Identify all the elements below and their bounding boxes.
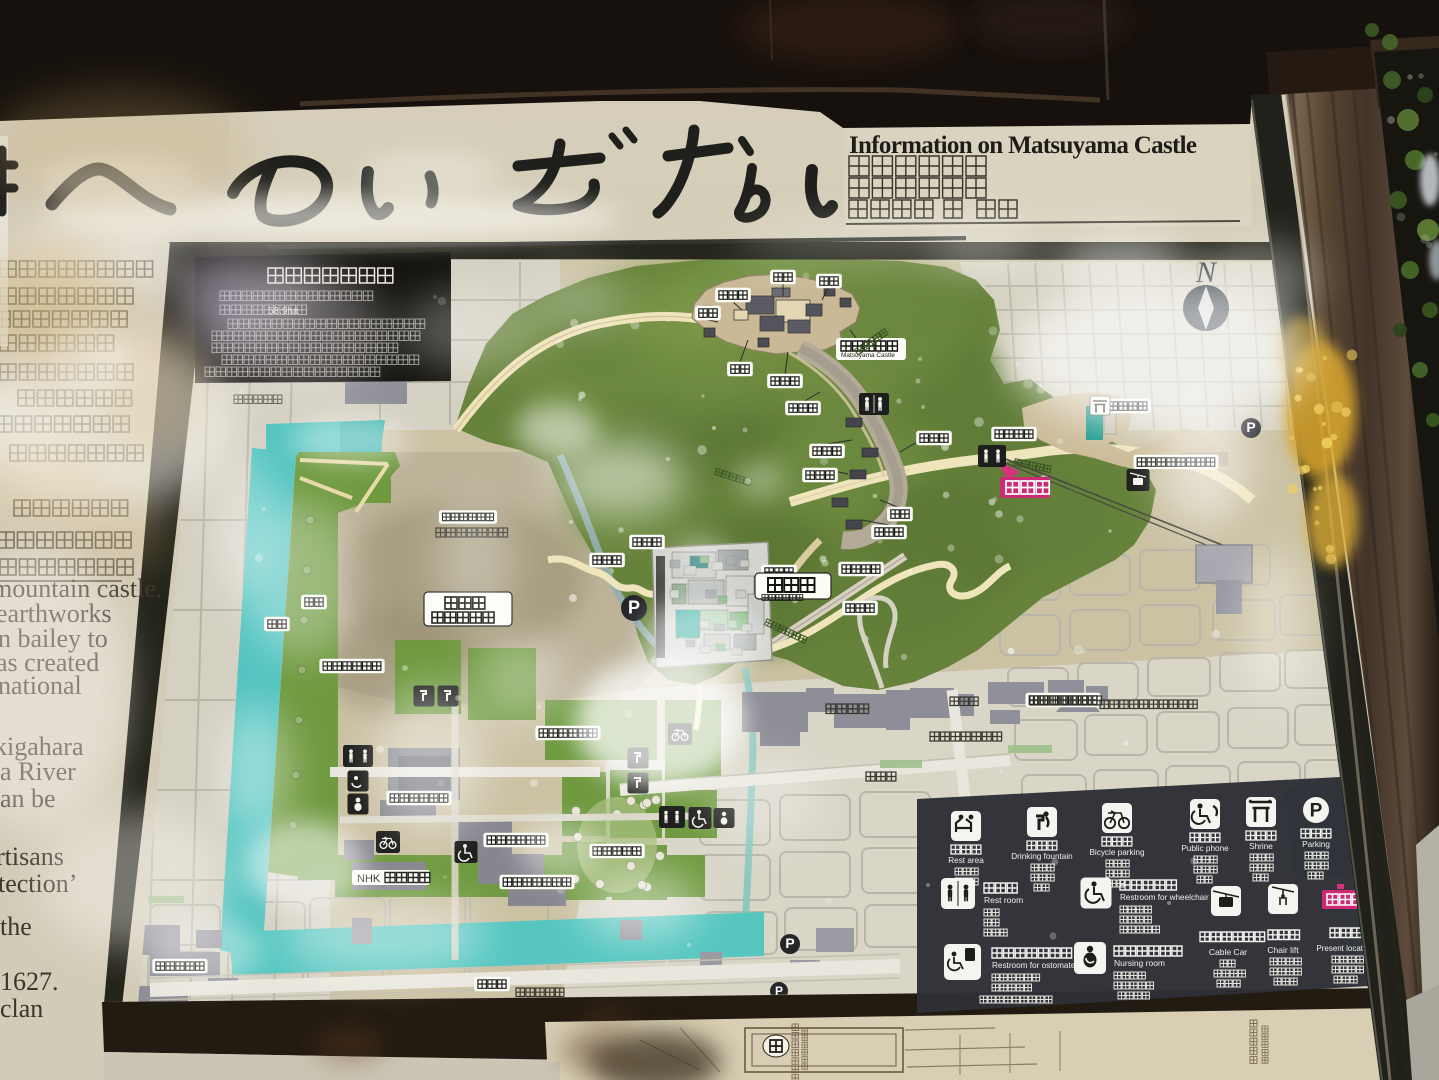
svg-text:Bicycle parking: Bicycle parking bbox=[1089, 848, 1145, 857]
svg-text:Shrine: Shrine bbox=[1249, 842, 1273, 851]
svg-text:Cable Car: Cable Car bbox=[1209, 947, 1247, 957]
svg-text:P: P bbox=[1246, 419, 1255, 435]
svg-text:Drinking fountain: Drinking fountain bbox=[1011, 852, 1073, 861]
svg-text:P: P bbox=[1310, 801, 1323, 822]
svg-text:Nursing room: Nursing room bbox=[1114, 958, 1165, 968]
svg-text:Information on Matsuyama Castl: Information on Matsuyama Castle bbox=[849, 132, 1197, 159]
svg-text:Rest area: Rest area bbox=[948, 856, 984, 865]
svg-text:Rest room: Rest room bbox=[984, 895, 1023, 905]
svg-text:Public phone: Public phone bbox=[1181, 844, 1229, 853]
svg-text:P: P bbox=[628, 597, 640, 617]
svg-text:Restroom for wheelchair: Restroom for wheelchair bbox=[1120, 893, 1209, 902]
svg-text:Restroom for ostomates: Restroom for ostomates bbox=[992, 961, 1079, 970]
svg-text:1627.: 1627. bbox=[0, 967, 59, 996]
svg-text:Chair lift: Chair lift bbox=[1267, 945, 1299, 955]
svg-text:P: P bbox=[785, 935, 794, 951]
svg-text:Parking: Parking bbox=[1302, 840, 1330, 849]
svg-text:the: the bbox=[0, 912, 32, 941]
svg-text:clan: clan bbox=[0, 994, 43, 1023]
svg-text:Matsuyama Castle: Matsuyama Castle bbox=[841, 352, 895, 359]
